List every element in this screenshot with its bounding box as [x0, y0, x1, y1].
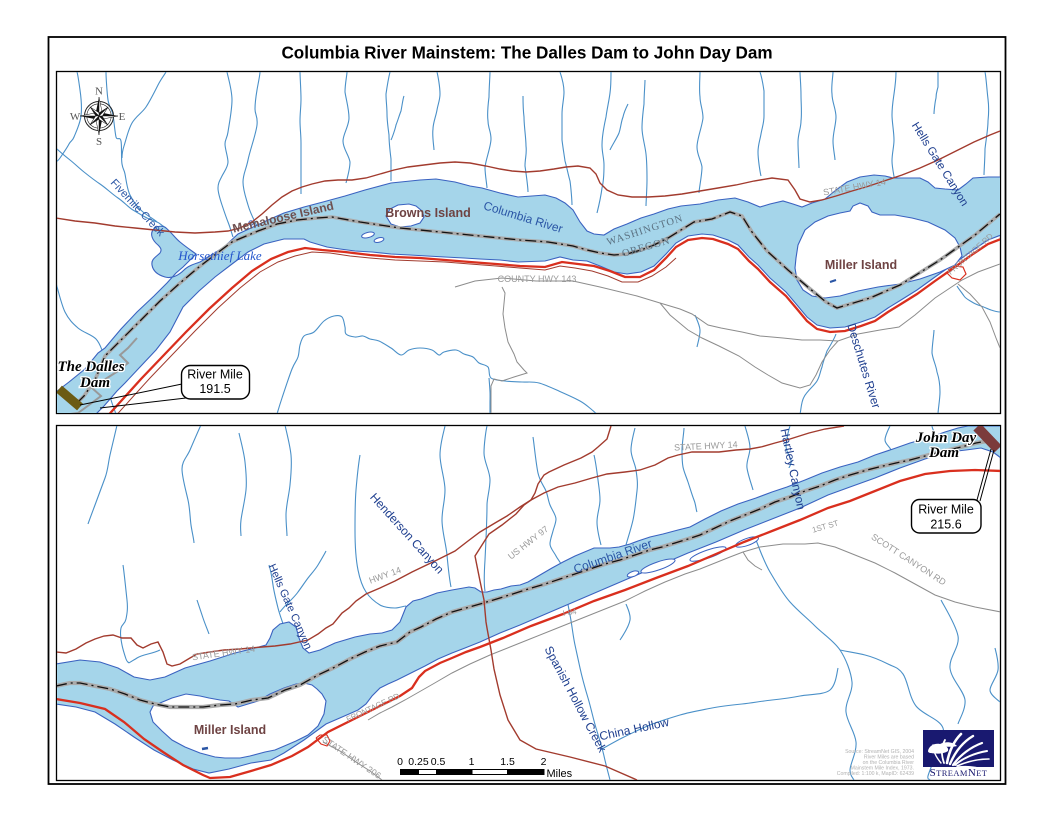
svg-text:E: E [119, 111, 126, 123]
svg-text:Miller Island: Miller Island [194, 723, 266, 737]
svg-text:S: S [96, 136, 102, 148]
svg-text:The Dalles: The Dalles [57, 359, 124, 375]
svg-text:Browns Island: Browns Island [385, 206, 470, 220]
svg-text:Dam: Dam [79, 375, 110, 391]
svg-text:N: N [95, 86, 103, 98]
svg-text:STREAMNET: STREAMNET [930, 767, 988, 779]
svg-text:2: 2 [541, 756, 547, 768]
svg-text:215.6: 215.6 [930, 518, 961, 532]
svg-text:Columbia River Mainstem: The D: Columbia River Mainstem: The Dalles Dam … [281, 44, 772, 63]
svg-text:191.5: 191.5 [199, 382, 230, 396]
svg-text:Dam: Dam [928, 445, 959, 461]
svg-text:0: 0 [397, 756, 403, 768]
svg-text:0.25: 0.25 [408, 756, 429, 768]
svg-text:W: W [70, 111, 81, 123]
svg-text:Miles: Miles [547, 768, 573, 780]
svg-text:Miller Island: Miller Island [825, 258, 897, 272]
svg-text:1.5: 1.5 [500, 756, 515, 768]
svg-text:Horsethief Lake: Horsethief Lake [177, 248, 262, 263]
svg-text:River Mile: River Mile [187, 368, 243, 382]
svg-text:John Day: John Day [915, 430, 977, 446]
svg-text:0.5: 0.5 [431, 756, 446, 768]
svg-text:River Mile: River Mile [918, 503, 974, 517]
svg-text:COUNTY HWY 143: COUNTY HWY 143 [498, 274, 577, 284]
svg-text:1: 1 [469, 756, 475, 768]
svg-text:Compiled: 1:100 k, MapID: 6243: Compiled: 1:100 k, MapID: 62439 [837, 771, 914, 777]
